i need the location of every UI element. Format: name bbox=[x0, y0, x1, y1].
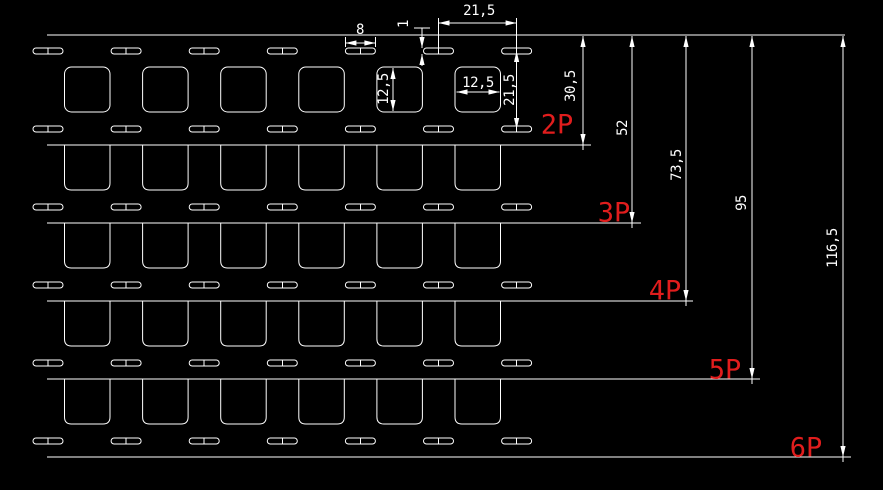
dimension-arrow bbox=[345, 40, 356, 45]
cell-opening bbox=[455, 301, 501, 346]
dimension-arrow bbox=[419, 54, 424, 65]
cell-opening bbox=[299, 67, 345, 112]
dimension-arrow bbox=[580, 36, 585, 47]
cell-opening bbox=[65, 145, 111, 190]
dimension-arrow bbox=[749, 368, 754, 379]
dimension-arrow bbox=[683, 36, 688, 47]
dimension-arrow bbox=[506, 20, 517, 25]
dimension-arrow bbox=[419, 37, 424, 48]
dim-square-width: 12,5 bbox=[462, 76, 494, 90]
dimension-arrow bbox=[749, 36, 754, 47]
dim-length-2p: 30,5 bbox=[564, 70, 578, 102]
cell-opening bbox=[455, 379, 501, 424]
cell-opening bbox=[377, 145, 423, 190]
cell-opening bbox=[143, 223, 189, 268]
dimension-arrow bbox=[840, 446, 845, 457]
dim-length-4p: 73,5 bbox=[670, 149, 684, 181]
cell-opening bbox=[221, 379, 267, 424]
cell-opening bbox=[377, 379, 423, 424]
cell-opening bbox=[221, 301, 267, 346]
dimension-arrow bbox=[580, 134, 585, 145]
cell-opening bbox=[299, 223, 345, 268]
cell-opening bbox=[455, 145, 501, 190]
label-3p: 3P bbox=[598, 200, 631, 227]
cell-opening bbox=[65, 379, 111, 424]
cell-opening bbox=[143, 67, 189, 112]
dim-length-6p: 116,5 bbox=[826, 228, 840, 268]
cell-opening bbox=[299, 301, 345, 346]
cell-opening bbox=[455, 223, 501, 268]
cell-opening bbox=[143, 145, 189, 190]
dimension-arrow bbox=[439, 20, 450, 25]
dimension-arrow bbox=[514, 51, 519, 62]
dim-row-pitch-vertical: 21,5 bbox=[503, 74, 517, 106]
dim-length-5p: 95 bbox=[735, 195, 749, 211]
drawing-geometry bbox=[0, 0, 883, 490]
dim-slot-thickness: 1 bbox=[397, 20, 411, 28]
dimension-arrow bbox=[683, 290, 688, 301]
dimension-arrow bbox=[629, 36, 634, 47]
cell-opening bbox=[377, 223, 423, 268]
label-6p: 6P bbox=[790, 435, 823, 462]
label-2p: 2P bbox=[541, 112, 574, 139]
cell-opening bbox=[221, 223, 267, 268]
cell-opening bbox=[65, 223, 111, 268]
cell-opening bbox=[65, 67, 111, 112]
dim-slot-width: 8 bbox=[356, 23, 364, 37]
cell-opening bbox=[143, 379, 189, 424]
cell-opening bbox=[221, 145, 267, 190]
label-5p: 5P bbox=[709, 357, 742, 384]
cell-opening bbox=[143, 301, 189, 346]
dim-slot-pitch-horizontal: 21,5 bbox=[463, 4, 495, 18]
dim-square-height: 12,5 bbox=[377, 73, 391, 105]
cell-opening bbox=[221, 67, 267, 112]
cell-opening bbox=[299, 145, 345, 190]
dimension-arrow bbox=[514, 118, 519, 129]
cell-opening bbox=[299, 379, 345, 424]
cell-opening bbox=[65, 301, 111, 346]
cell-opening bbox=[377, 301, 423, 346]
cad-drawing-viewport: 21,5 8 1 12,5 12,5 21,5 30,5 52 73,5 95 … bbox=[0, 0, 883, 490]
dimension-arrow bbox=[364, 40, 375, 45]
dimension-arrow bbox=[840, 36, 845, 47]
label-4p: 4P bbox=[649, 278, 682, 305]
dim-length-3p: 52 bbox=[616, 120, 630, 136]
